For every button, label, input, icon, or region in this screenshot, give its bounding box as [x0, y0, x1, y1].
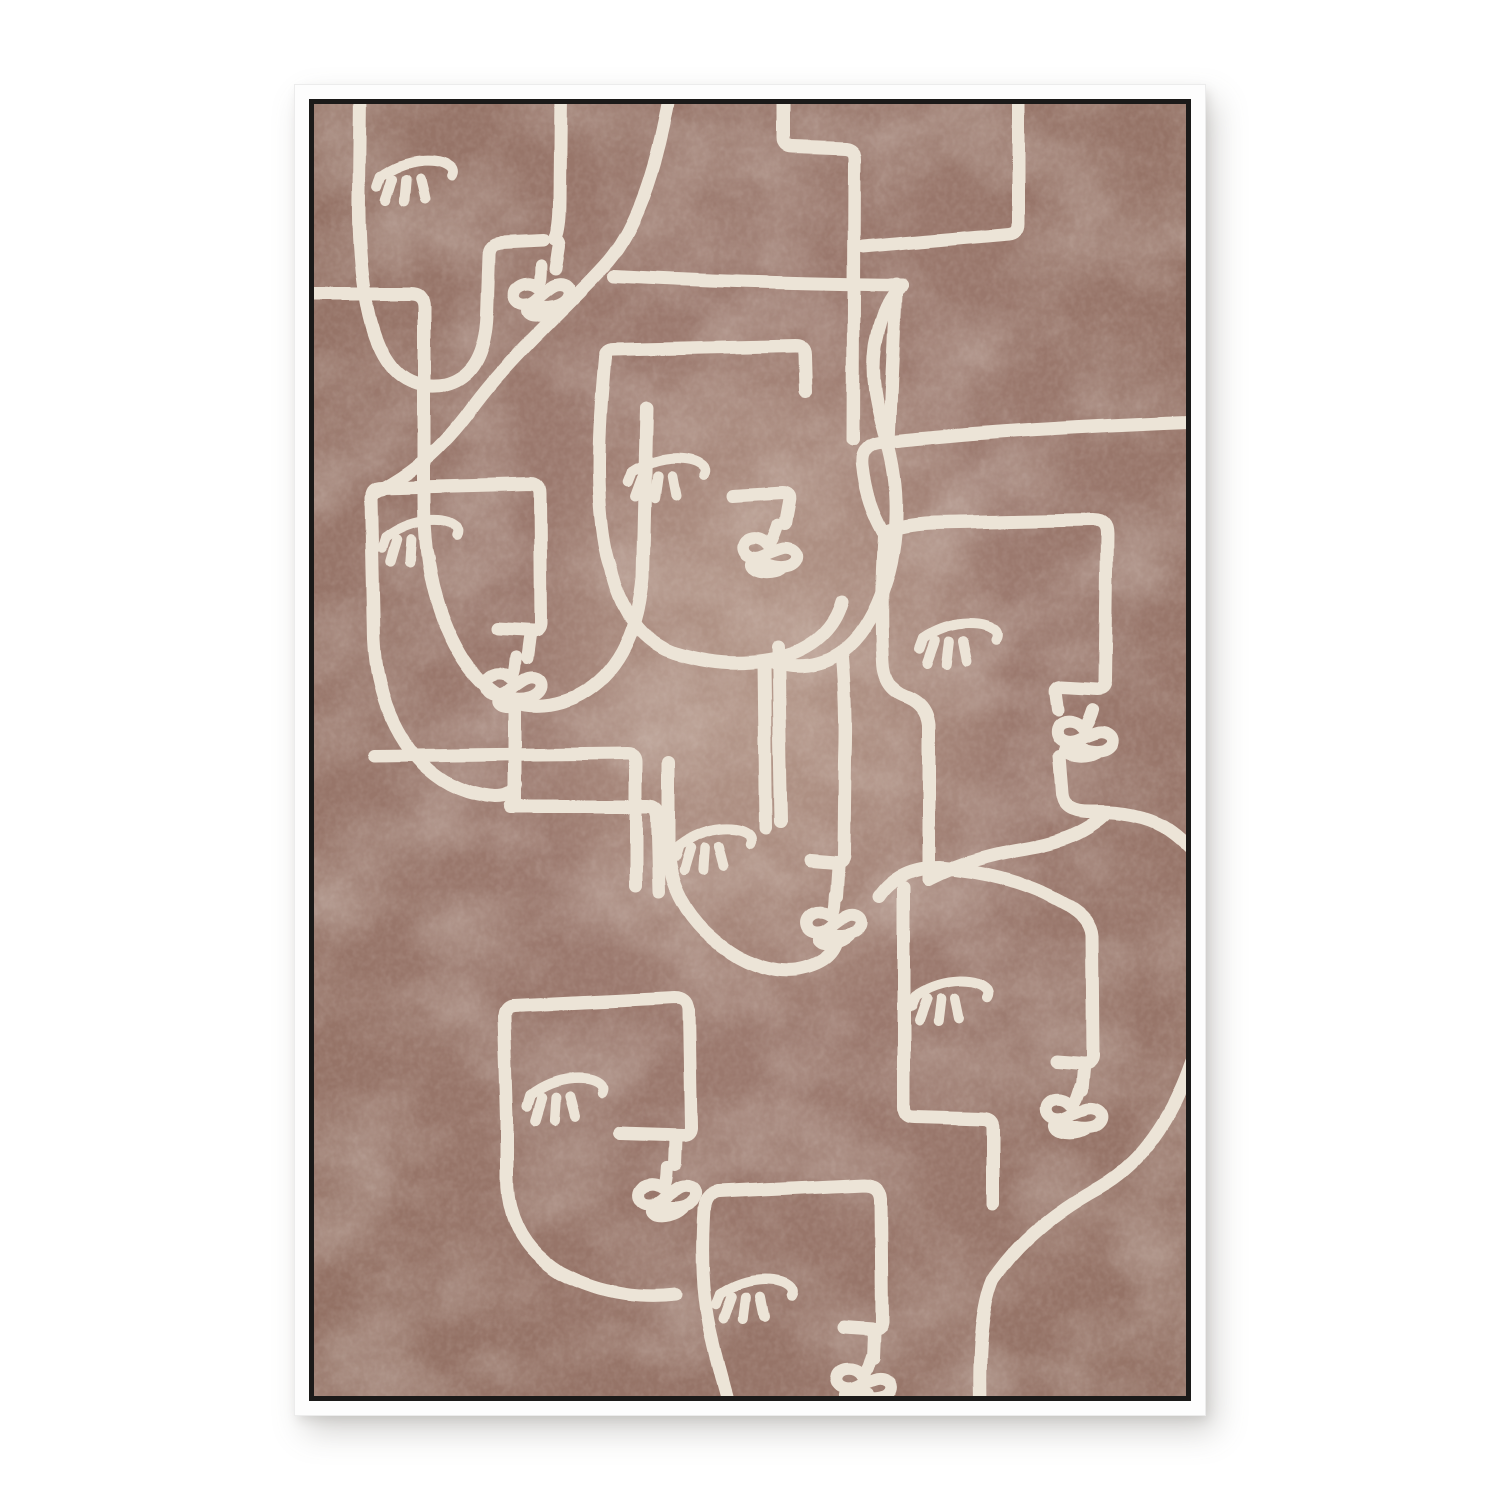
- frame-black-border: [309, 99, 1191, 1401]
- face-mid-left-outline: [527, 635, 530, 658]
- face-center-outline: [778, 648, 781, 822]
- face-bottom-right-outline: [1056, 1055, 1093, 1063]
- page: { "artwork": { "kind": "framed-art-print…: [0, 0, 1500, 1500]
- face-bottom-left-outline: [675, 1139, 676, 1164]
- face-top-left-outline: [555, 104, 561, 269]
- artwork-frame: [295, 85, 1205, 1415]
- face-center-outline: [764, 662, 766, 828]
- face-mid-left-outline: [498, 623, 541, 631]
- canvas-line-art: [314, 104, 1186, 1396]
